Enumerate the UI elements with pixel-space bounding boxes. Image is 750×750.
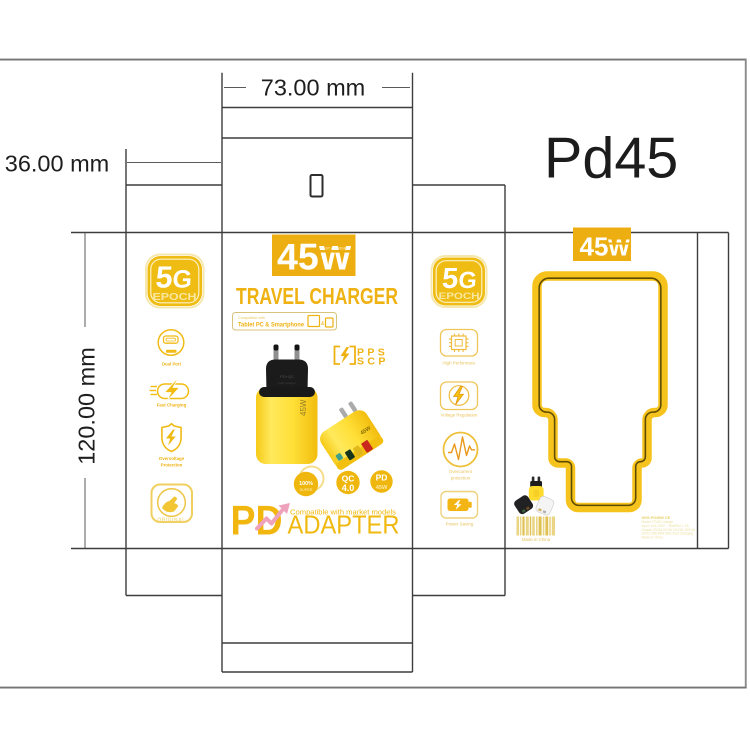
svg-text:4.0: 4.0: [342, 483, 355, 493]
svg-text:Compatible with: Compatible with: [238, 316, 265, 320]
svg-text:High Performace: High Performace: [443, 360, 477, 365]
svg-text:Tablet PC & Smartphone: Tablet PC & Smartphone: [238, 322, 304, 329]
svg-text:SCP: SCP: [357, 356, 389, 368]
svg-text:Pd45: Pd45: [544, 127, 678, 191]
svg-text:Dual Port: Dual Port: [162, 361, 182, 366]
svg-text:PD+QC: PD+QC: [280, 374, 294, 379]
svg-text:45: 45: [580, 232, 609, 262]
svg-text:PD: PD: [376, 473, 388, 483]
svg-text:W: W: [608, 235, 630, 261]
svg-text:36.00 mm: 36.00 mm: [5, 151, 110, 177]
svg-text:ORIGINAL: ORIGINAL: [157, 517, 185, 523]
svg-text:Voltage Regulation: Voltage Regulation: [441, 412, 478, 417]
svg-text:EPOCH: EPOCH: [439, 291, 480, 301]
svg-text:QC: QC: [342, 474, 355, 484]
svg-text:Fast Charger: Fast Charger: [278, 381, 296, 385]
svg-text:FAST CHARGER: FAST CHARGER: [321, 247, 349, 251]
svg-text:Protection: Protection: [161, 463, 183, 468]
svg-text:120.00 mm: 120.00 mm: [74, 347, 100, 465]
svg-text:45: 45: [277, 236, 319, 278]
svg-text:G: G: [458, 267, 478, 293]
svg-text:SUPER: SUPER: [299, 488, 312, 492]
svg-text:W: W: [319, 240, 352, 278]
svg-text:protection: protection: [451, 475, 471, 480]
svg-text:45W: 45W: [299, 399, 308, 416]
svg-text:G: G: [172, 266, 193, 294]
svg-text:TRAVEL CHARGER: TRAVEL CHARGER: [236, 283, 398, 309]
svg-text:100%: 100%: [299, 481, 313, 487]
svg-text:Made in China: Made in China: [642, 535, 663, 539]
svg-text:Overcurrent: Overcurrent: [449, 469, 473, 474]
svg-text:73.00 mm: 73.00 mm: [261, 75, 366, 101]
svg-text:Fast Charging: Fast Charging: [157, 402, 187, 407]
svg-text:Made in China: Made in China: [522, 537, 551, 542]
svg-text:45W: 45W: [376, 485, 388, 491]
svg-text:ADAPTER: ADAPTER: [288, 512, 400, 540]
svg-text:Power Saving: Power Saving: [446, 521, 474, 526]
svg-text:5: 5: [441, 263, 459, 295]
svg-text:EPOCH: EPOCH: [153, 292, 197, 303]
svg-text:Overvoltage: Overvoltage: [159, 456, 185, 461]
